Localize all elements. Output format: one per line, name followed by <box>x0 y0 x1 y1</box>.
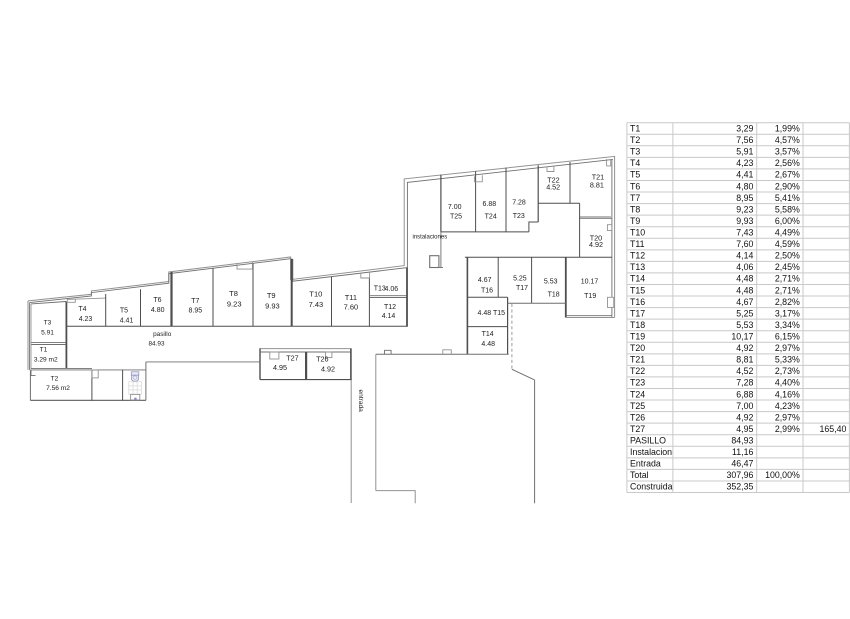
svg-text:7.60: 7.60 <box>344 302 359 311</box>
svg-text:4,52: 4,52 <box>736 366 753 376</box>
svg-text:9,93: 9,93 <box>736 216 753 226</box>
svg-text:11,16: 11,16 <box>732 447 753 457</box>
svg-text:T9: T9 <box>630 216 640 226</box>
svg-text:T5: T5 <box>120 308 128 315</box>
svg-text:6,15%: 6,15% <box>775 332 800 342</box>
svg-text:7,60: 7,60 <box>736 239 753 249</box>
svg-text:46,47: 46,47 <box>731 459 753 469</box>
svg-text:4.48 T15: 4.48 T15 <box>478 310 506 317</box>
svg-text:T27: T27 <box>630 424 645 434</box>
svg-text:T6: T6 <box>153 297 161 304</box>
svg-text:T8: T8 <box>229 289 238 298</box>
svg-text:5,58%: 5,58% <box>775 204 800 214</box>
svg-text:2,99%: 2,99% <box>775 424 800 434</box>
svg-text:entrada: entrada <box>357 390 364 413</box>
svg-text:2,56%: 2,56% <box>775 158 800 168</box>
svg-text:T22: T22 <box>630 366 645 376</box>
svg-text:4,41: 4,41 <box>736 170 753 180</box>
svg-text:4,95: 4,95 <box>736 424 753 434</box>
svg-text:T5: T5 <box>630 170 640 180</box>
svg-text:2,97%: 2,97% <box>775 412 800 422</box>
svg-text:5.91: 5.91 <box>41 329 54 336</box>
svg-text:2,90%: 2,90% <box>775 181 800 191</box>
svg-text:T19: T19 <box>630 332 645 342</box>
svg-text:T19: T19 <box>584 293 596 300</box>
svg-text:4,16%: 4,16% <box>775 389 800 399</box>
svg-text:2,97%: 2,97% <box>775 343 800 353</box>
svg-text:4,80: 4,80 <box>736 181 753 191</box>
svg-text:pasillo: pasillo <box>153 331 172 338</box>
svg-text:9.93: 9.93 <box>265 302 280 311</box>
svg-text:T1: T1 <box>40 347 48 354</box>
svg-text:T11: T11 <box>630 239 645 249</box>
svg-text:T6: T6 <box>630 181 640 191</box>
svg-text:8.81: 8.81 <box>590 180 604 189</box>
svg-text:6,00%: 6,00% <box>775 216 800 226</box>
svg-text:T8: T8 <box>630 204 640 214</box>
svg-text:T16: T16 <box>630 297 645 307</box>
svg-text:7,43: 7,43 <box>736 228 753 238</box>
svg-text:3.29 m2: 3.29 m2 <box>34 357 58 364</box>
svg-text:Construida: Construida <box>630 482 673 492</box>
svg-text:7.28: 7.28 <box>512 200 526 207</box>
svg-text:4.80: 4.80 <box>151 307 165 314</box>
svg-text:4,48: 4,48 <box>736 285 753 295</box>
svg-text:4,23: 4,23 <box>736 158 753 168</box>
svg-text:3,17%: 3,17% <box>775 308 800 318</box>
svg-text:T23: T23 <box>630 378 645 388</box>
svg-text:T14: T14 <box>482 331 494 338</box>
svg-text:T10: T10 <box>630 228 645 238</box>
svg-text:2,67%: 2,67% <box>775 170 800 180</box>
svg-text:3,34%: 3,34% <box>775 320 800 330</box>
svg-text:T3: T3 <box>44 320 52 327</box>
svg-text:8.95: 8.95 <box>188 308 202 315</box>
svg-text:6.88: 6.88 <box>482 201 496 208</box>
svg-text:T16: T16 <box>481 287 493 294</box>
svg-text:4.52: 4.52 <box>546 182 560 191</box>
svg-text:7,28: 7,28 <box>736 378 753 388</box>
svg-text:8,95: 8,95 <box>736 193 753 203</box>
svg-text:T26: T26 <box>316 355 328 364</box>
svg-text:7.56 m2: 7.56 m2 <box>46 385 70 392</box>
svg-text:T4: T4 <box>630 158 640 168</box>
svg-text:4.23: 4.23 <box>79 316 93 323</box>
svg-text:4.41: 4.41 <box>120 317 134 324</box>
svg-text:5,41%: 5,41% <box>775 193 800 203</box>
svg-text:7.43: 7.43 <box>309 300 324 309</box>
svg-text:T1: T1 <box>630 124 640 134</box>
svg-text:Entrada: Entrada <box>630 459 661 469</box>
svg-text:4,57%: 4,57% <box>775 135 800 145</box>
svg-text:5.53: 5.53 <box>544 279 558 286</box>
svg-text:7,56: 7,56 <box>736 135 753 145</box>
svg-text:4,67: 4,67 <box>736 297 753 307</box>
svg-text:5,91: 5,91 <box>736 147 753 157</box>
svg-text:307,96: 307,96 <box>726 470 753 480</box>
svg-text:T3: T3 <box>630 147 640 157</box>
svg-text:T7: T7 <box>630 193 640 203</box>
svg-text:1,99%: 1,99% <box>775 124 800 134</box>
svg-text:4.92: 4.92 <box>321 364 335 373</box>
svg-text:7,00: 7,00 <box>736 401 753 411</box>
svg-text:PASILLO: PASILLO <box>630 436 666 446</box>
svg-text:T10: T10 <box>309 290 322 299</box>
svg-text:4,92: 4,92 <box>736 412 753 422</box>
svg-text:10.17: 10.17 <box>581 279 599 286</box>
svg-text:instalaciones: instalaciones <box>413 235 448 241</box>
svg-text:2,73%: 2,73% <box>775 366 800 376</box>
svg-text:T18: T18 <box>630 320 645 330</box>
svg-text:T14: T14 <box>630 274 645 284</box>
svg-text:T23: T23 <box>513 213 525 220</box>
svg-text:8,81: 8,81 <box>736 355 753 365</box>
svg-text:T24: T24 <box>485 214 497 221</box>
svg-text:T24: T24 <box>630 389 645 399</box>
svg-text:T21: T21 <box>630 355 645 365</box>
svg-text:4,23%: 4,23% <box>775 401 800 411</box>
svg-text:9.23: 9.23 <box>227 299 242 308</box>
svg-text:T20: T20 <box>630 343 645 353</box>
svg-text:4.14: 4.14 <box>382 313 396 320</box>
svg-text:2,82%: 2,82% <box>775 297 800 307</box>
svg-text:5,33%: 5,33% <box>775 355 800 365</box>
svg-text:T4: T4 <box>78 306 86 313</box>
svg-text:T9: T9 <box>267 291 276 300</box>
svg-text:5.25: 5.25 <box>513 276 527 283</box>
svg-text:4.48: 4.48 <box>481 341 495 348</box>
svg-text:4,92: 4,92 <box>736 343 753 353</box>
svg-text:4,59%: 4,59% <box>775 239 800 249</box>
svg-text:4,14: 4,14 <box>736 251 753 261</box>
svg-text:3,29: 3,29 <box>736 124 753 134</box>
svg-text:4,40%: 4,40% <box>775 378 800 388</box>
svg-text:T26: T26 <box>630 412 645 422</box>
svg-text:2,50%: 2,50% <box>775 251 800 261</box>
svg-text:T2: T2 <box>630 135 640 145</box>
svg-text:3,57%: 3,57% <box>775 147 800 157</box>
svg-text:4,49%: 4,49% <box>775 228 800 238</box>
svg-text:4.92: 4.92 <box>589 240 603 249</box>
svg-text:T2: T2 <box>51 376 59 383</box>
svg-text:4.67: 4.67 <box>478 277 492 284</box>
svg-text:165,40: 165,40 <box>819 424 846 434</box>
svg-text:6,88: 6,88 <box>736 389 753 399</box>
svg-text:5,53: 5,53 <box>736 320 753 330</box>
svg-text:Total: Total <box>630 470 649 480</box>
svg-text:5,25: 5,25 <box>736 308 753 318</box>
svg-text:T11: T11 <box>345 293 357 302</box>
svg-text:T17: T17 <box>630 308 645 318</box>
svg-text:352,35: 352,35 <box>726 482 753 492</box>
svg-text:9,23: 9,23 <box>736 204 753 214</box>
svg-text:4,06: 4,06 <box>736 262 753 272</box>
svg-text:T7: T7 <box>191 298 199 305</box>
svg-text:T27: T27 <box>286 353 298 362</box>
svg-text:7.00: 7.00 <box>448 204 462 211</box>
svg-text:4.95: 4.95 <box>273 363 287 372</box>
svg-text:2,45%: 2,45% <box>775 262 800 272</box>
svg-text:T25: T25 <box>450 214 462 221</box>
svg-text:T15: T15 <box>630 285 645 295</box>
svg-text:T25: T25 <box>630 401 645 411</box>
svg-text:T17: T17 <box>516 285 528 292</box>
svg-text:84,93: 84,93 <box>731 436 753 446</box>
svg-text:T12: T12 <box>630 251 645 261</box>
svg-text:T18: T18 <box>548 292 560 299</box>
svg-text:4,48: 4,48 <box>736 274 753 284</box>
svg-text:4.06: 4.06 <box>384 286 398 293</box>
svg-text:2,71%: 2,71% <box>775 274 800 284</box>
svg-text:T13: T13 <box>630 262 645 272</box>
svg-text:2,71%: 2,71% <box>775 285 800 295</box>
svg-text:10,17: 10,17 <box>731 332 753 342</box>
svg-text:T12: T12 <box>384 304 396 311</box>
svg-text:100,00%: 100,00% <box>765 470 800 480</box>
svg-text:84.93: 84.93 <box>149 340 165 347</box>
